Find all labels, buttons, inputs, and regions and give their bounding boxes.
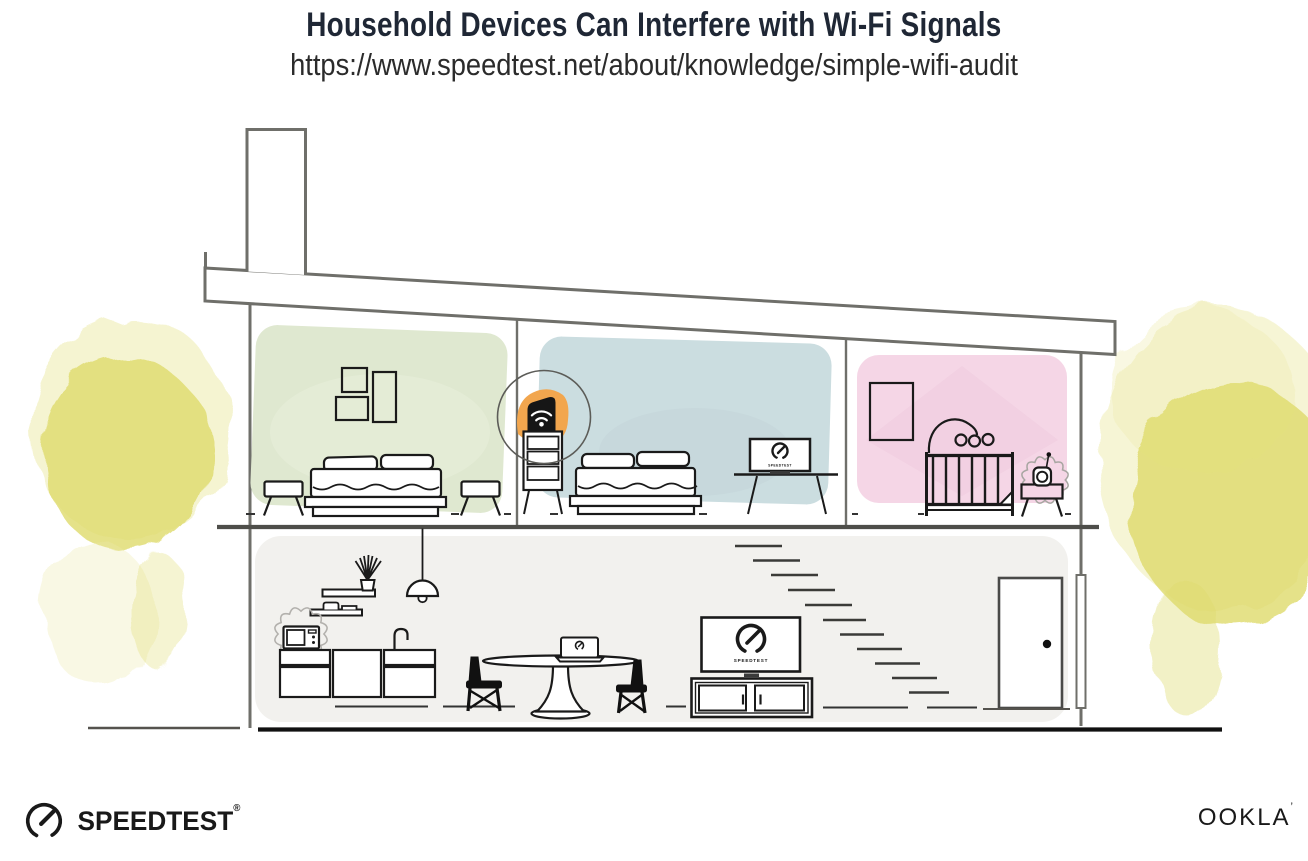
wifi-audit-infographic: Household Devices Can Interfere with Wi-… — [0, 0, 1308, 861]
house-cross-section-illustration: SPEEDTEST — [0, 0, 1308, 861]
tv: SPEEDTEST — [702, 618, 801, 678]
downspout — [1077, 575, 1086, 708]
header: Household Devices Can Interfere with Wi-… — [0, 6, 1308, 83]
dining-laptop — [557, 638, 604, 662]
ookla-logo: OOKLA’ — [1198, 804, 1295, 832]
right-tree — [1100, 310, 1308, 716]
source-url: https://www.speedtest.net/about/knowledg… — [78, 47, 1229, 83]
speedtest-logo: SPEEDTEST® — [22, 799, 243, 843]
tv-label: SPEEDTEST — [734, 658, 769, 663]
speedtest-wordmark: SPEEDTEST® — [78, 806, 241, 837]
door-knob — [1043, 640, 1051, 648]
speedtest-registered-mark: ® — [233, 803, 240, 814]
chimney — [247, 130, 306, 276]
left-tree — [32, 318, 232, 687]
ookla-registered-mark: ’ — [1291, 801, 1295, 813]
ookla-wordmark: OOKLA — [1198, 804, 1291, 831]
monitor-stand — [770, 471, 790, 475]
media-console — [692, 679, 813, 718]
tv-stand — [744, 674, 759, 678]
monitor-label: SPEEDTEST — [768, 464, 792, 468]
speedtest-gauge-icon — [22, 799, 66, 843]
microwave — [284, 627, 320, 649]
router-shelf — [524, 432, 563, 515]
bedroom-middle-monitor: SPEEDTEST — [750, 439, 810, 475]
bedroom-left-bed — [305, 455, 446, 516]
kitchen-counter — [280, 650, 435, 697]
page-title: Household Devices Can Interfere with Wi-… — [306, 6, 1001, 45]
